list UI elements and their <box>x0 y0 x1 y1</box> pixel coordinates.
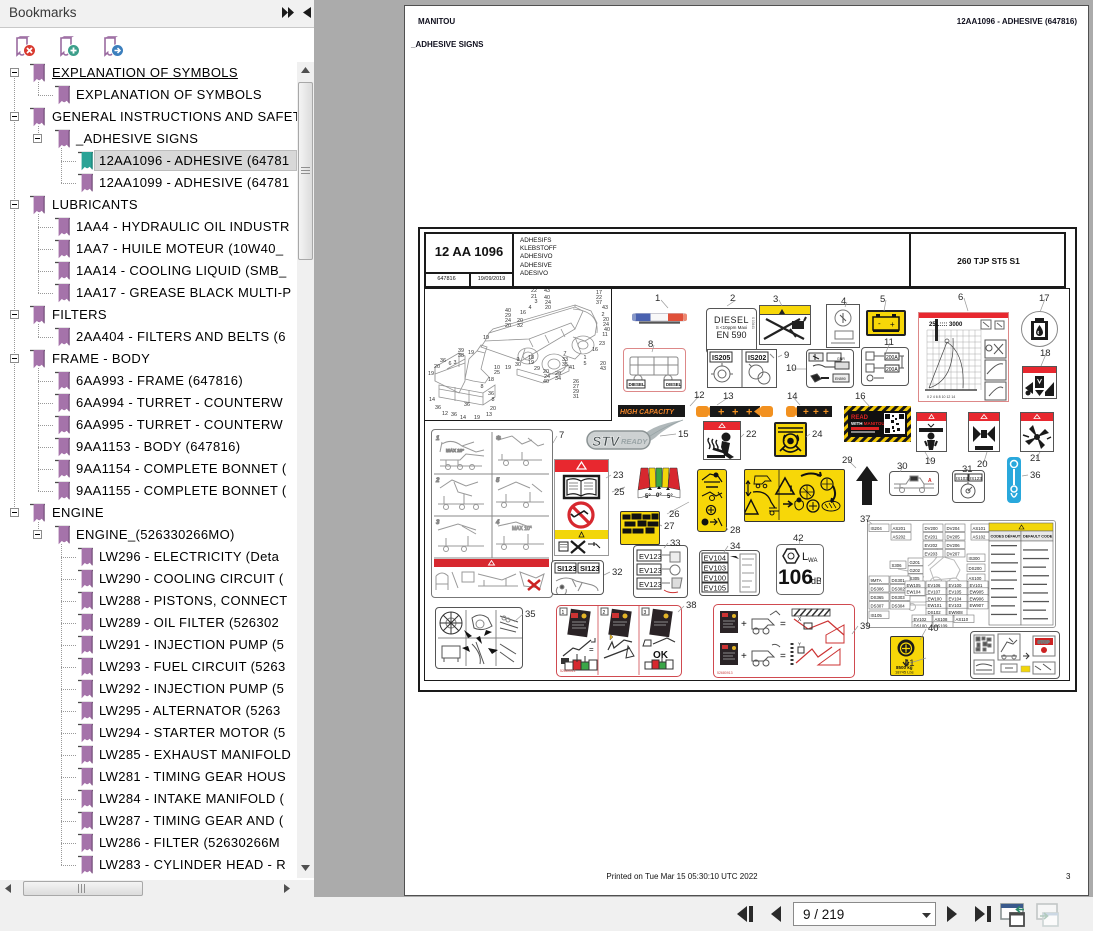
svg-text:DS365: DS365 <box>871 595 885 600</box>
svg-text:36: 36 <box>464 402 470 408</box>
svg-text:DV206: DV206 <box>947 543 961 548</box>
svg-text:dB: dB <box>811 576 821 586</box>
svg-text:EV103: EV103 <box>704 564 727 573</box>
svg-text:25: 25 <box>494 370 500 376</box>
svg-text:23: 23 <box>599 341 605 347</box>
svg-text:DS302: DS302 <box>892 586 906 591</box>
svg-text:DS307: DS307 <box>871 603 885 608</box>
svg-text:43: 43 <box>544 289 550 294</box>
svg-text:+: + <box>813 407 819 418</box>
svg-text:36: 36 <box>451 412 457 418</box>
svg-text:SI123: SI123 <box>580 564 600 573</box>
svg-text:EW908: EW908 <box>949 610 964 615</box>
svg-text:30: 30 <box>515 362 521 368</box>
svg-text:CODES DÉFAUTS: CODES DÉFAUTS <box>991 534 1024 539</box>
svg-text:+: + <box>718 407 724 419</box>
svg-text:AS100: AS100 <box>969 576 983 581</box>
svg-text:DS304: DS304 <box>892 603 906 608</box>
svg-text:200A: 200A <box>886 367 898 373</box>
svg-text:MAX 10°: MAX 10° <box>446 448 464 453</box>
svg-text:19: 19 <box>483 335 489 341</box>
svg-text:+: + <box>803 407 809 418</box>
svg-text:5°: 5° <box>667 494 673 500</box>
svg-text:X: X <box>798 617 802 623</box>
svg-text:IS204: IS204 <box>871 526 883 531</box>
svg-text:EV123: EV123 <box>639 580 662 589</box>
svg-text:EV123: EV123 <box>639 566 662 575</box>
svg-text:EW101: EW101 <box>928 603 943 608</box>
svg-text:41: 41 <box>569 365 575 371</box>
svg-text:40: 40 <box>543 379 549 385</box>
svg-text:DS102: DS102 <box>928 610 942 615</box>
svg-text:19: 19 <box>428 371 434 377</box>
svg-text:4: 4 <box>495 520 500 526</box>
svg-text:34: 34 <box>555 376 561 382</box>
svg-text:DV200: DV200 <box>925 526 939 531</box>
svg-text:EV106: EV106 <box>928 583 942 588</box>
svg-text:=: = <box>589 645 594 654</box>
svg-text:EV105: EV105 <box>704 584 727 593</box>
svg-text:DS100: DS100 <box>914 624 928 627</box>
svg-text:!: ! <box>790 486 792 493</box>
svg-text:16: 16 <box>520 310 526 316</box>
svg-text:=: = <box>780 619 786 630</box>
svg-text:EV203: EV203 <box>925 551 939 556</box>
svg-text:AS101: AS101 <box>973 526 987 531</box>
svg-text:8: 8 <box>492 397 495 403</box>
svg-text:14: 14 <box>460 415 466 420</box>
svg-text:20: 20 <box>545 305 551 311</box>
svg-text:✱: ✱ <box>496 435 501 442</box>
svg-text:DS301: DS301 <box>892 578 906 583</box>
svg-text:EV104: EV104 <box>949 596 963 601</box>
svg-text:29: 29 <box>534 366 540 372</box>
svg-text:EV201: EV201 <box>925 534 939 539</box>
svg-text:106: 106 <box>778 566 813 589</box>
svg-text:WA: WA <box>808 558 817 564</box>
svg-text:5: 5 <box>584 361 587 367</box>
svg-text:13: 13 <box>486 412 492 418</box>
svg-text:+: + <box>746 407 752 419</box>
svg-text:DV205: DV205 <box>947 534 961 539</box>
svg-text:IS202: IS202 <box>748 355 766 362</box>
svg-text:EV123: EV123 <box>639 552 662 561</box>
svg-text:EV105: EV105 <box>949 590 963 595</box>
svg-text:DV207: DV207 <box>947 551 961 556</box>
svg-text:18745 Lbs: 18745 Lbs <box>895 670 914 675</box>
svg-text:S305: S305 <box>910 576 921 581</box>
svg-text:43: 43 <box>600 366 606 372</box>
svg-text:3: 3 <box>535 299 538 305</box>
svg-text:EV202: EV202 <box>925 543 939 548</box>
svg-text:Y: Y <box>798 642 801 647</box>
svg-text:EW105: EW105 <box>907 583 922 588</box>
svg-text:36: 36 <box>440 358 446 364</box>
svg-text:IS105: IS105 <box>871 613 883 618</box>
svg-text:EV100: EV100 <box>704 574 727 583</box>
svg-text:3: 3 <box>454 360 457 366</box>
svg-text:AS202: AS202 <box>893 534 907 539</box>
svg-text:+: + <box>823 407 829 418</box>
svg-text:EV103: EV103 <box>949 603 963 608</box>
svg-text:DV204: DV204 <box>947 526 961 531</box>
svg-text:32: 32 <box>517 323 523 329</box>
svg-text:6: 6 <box>449 361 452 367</box>
svg-text:18: 18 <box>488 377 494 383</box>
svg-text:G202: G202 <box>910 568 921 573</box>
svg-text:25L:::: 3000: 25L:::: 3000 <box>929 322 963 328</box>
svg-text:11: 11 <box>602 332 608 338</box>
svg-text:DEFAULT CODE: DEFAULT CODE <box>1023 535 1053 539</box>
svg-text:S306: S306 <box>892 563 903 568</box>
svg-text:9MTA: 9MTA <box>871 578 882 583</box>
svg-text:-: - <box>878 319 881 328</box>
svg-text:IS103: IS103 <box>956 476 968 481</box>
svg-text:16: 16 <box>592 347 598 353</box>
svg-text:4: 4 <box>529 305 532 311</box>
svg-text:20: 20 <box>490 406 496 412</box>
svg-text:52680913: 52680913 <box>717 671 733 675</box>
svg-text:38: 38 <box>458 353 464 359</box>
svg-text:IS205: IS205 <box>712 355 730 362</box>
svg-text:EN590: EN590 <box>835 377 846 381</box>
svg-text:DIESEL: DIESEL <box>666 382 682 387</box>
svg-text:12: 12 <box>442 411 448 417</box>
svg-text:AS102: AS102 <box>973 534 987 539</box>
svg-text:DS306: DS306 <box>871 586 885 591</box>
svg-text:MAX 10": MAX 10" <box>512 526 532 532</box>
svg-text:STOP: STOP <box>1038 640 1050 645</box>
svg-text:52683012: 52683012 <box>560 669 576 673</box>
svg-text:36: 36 <box>435 405 441 411</box>
svg-text:3: 3 <box>436 520 440 526</box>
svg-text:SI123: SI123 <box>557 564 577 573</box>
svg-text:G201: G201 <box>910 560 921 565</box>
svg-text:EV102: EV102 <box>914 617 928 622</box>
svg-text:EW104: EW104 <box>907 590 922 595</box>
svg-text:EW906: EW906 <box>970 596 985 601</box>
svg-text:+: + <box>732 407 738 419</box>
svg-text:AS110: AS110 <box>956 617 969 622</box>
svg-text:A: A <box>928 478 932 484</box>
svg-text:14: 14 <box>429 397 435 403</box>
svg-text:AS108: AS108 <box>935 617 949 622</box>
svg-text:=: = <box>780 651 786 662</box>
svg-text:DS200: DS200 <box>969 566 983 571</box>
svg-text:+: + <box>741 619 747 630</box>
svg-text:EW100: EW100 <box>928 596 943 601</box>
svg-text:READY: READY <box>621 437 648 446</box>
svg-text:19: 19 <box>468 350 474 356</box>
svg-text:0°: 0° <box>656 493 662 499</box>
svg-text:2: 2 <box>603 610 606 616</box>
svg-text:DIESEL: DIESEL <box>629 382 646 387</box>
svg-text:EV101: EV101 <box>970 583 984 588</box>
svg-text:DS303: DS303 <box>892 595 906 600</box>
svg-text:OK: OK <box>653 650 669 661</box>
svg-text:5°: 5° <box>645 494 651 500</box>
svg-text:0 2 4 6 8 10 12 14: 0 2 4 6 8 10 12 14 <box>927 395 955 399</box>
svg-text:20: 20 <box>505 323 511 329</box>
svg-text:31: 31 <box>573 394 579 400</box>
svg-text:STV: STV <box>592 433 621 449</box>
svg-text:19: 19 <box>474 415 480 420</box>
svg-text:1: 1 <box>562 610 565 616</box>
svg-text:IS300: IS300 <box>969 556 981 561</box>
svg-text:EV104: EV104 <box>704 554 727 563</box>
svg-text:43: 43 <box>602 305 608 311</box>
svg-text:EV100: EV100 <box>949 583 963 588</box>
svg-text:AS201: AS201 <box>893 526 907 531</box>
svg-text:IS123: IS123 <box>970 476 982 481</box>
svg-text:EW905: EW905 <box>970 590 985 595</box>
svg-text:GNR: GNR <box>837 357 845 361</box>
svg-text:2: 2 <box>435 478 440 484</box>
svg-text:+: + <box>741 651 747 662</box>
svg-text:3: 3 <box>644 610 647 616</box>
svg-text:EV107: EV107 <box>928 590 942 595</box>
svg-text:200A: 200A <box>886 355 898 361</box>
svg-text:1: 1 <box>436 436 440 442</box>
svg-text:19: 19 <box>505 365 511 371</box>
svg-text:35: 35 <box>562 362 568 368</box>
svg-text:20: 20 <box>434 364 440 370</box>
svg-text:EW907: EW907 <box>970 603 985 608</box>
svg-text:5: 5 <box>496 478 500 484</box>
svg-text:+: + <box>890 320 895 329</box>
svg-text:8: 8 <box>481 384 484 390</box>
